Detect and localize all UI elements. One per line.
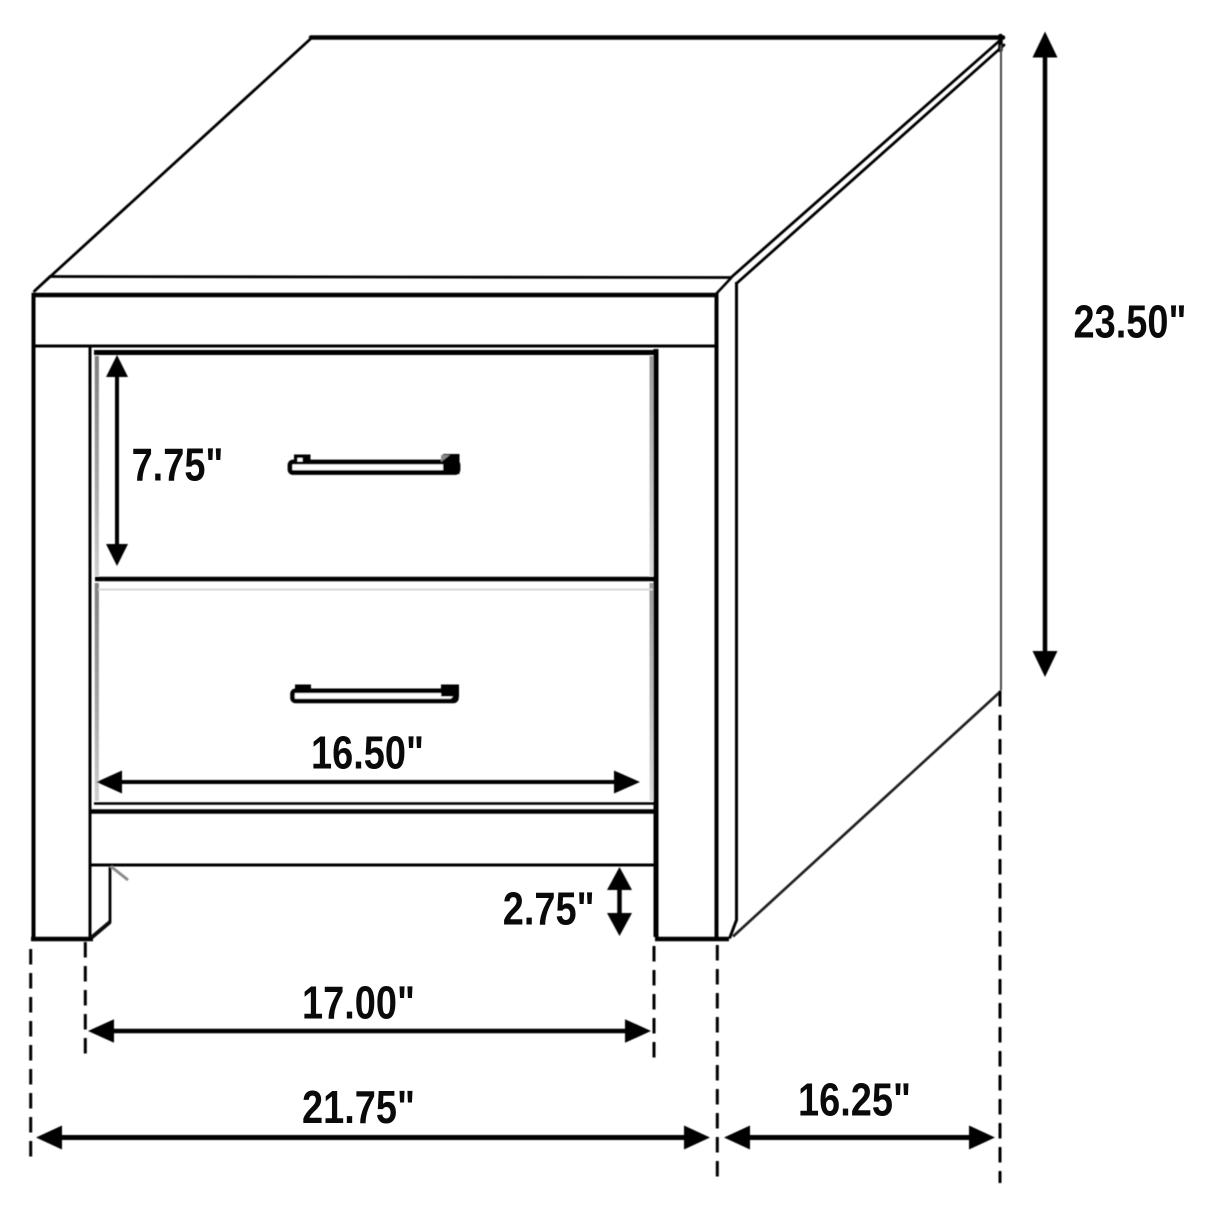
svg-text:21.75": 21.75" <box>302 1082 415 1133</box>
svg-text:7.75": 7.75" <box>132 439 224 490</box>
svg-text:16.50": 16.50" <box>311 727 424 778</box>
svg-text:2.75": 2.75" <box>503 883 595 934</box>
svg-text:16.25": 16.25" <box>798 1074 911 1125</box>
svg-text:17.00": 17.00" <box>302 977 415 1028</box>
svg-text:23.50": 23.50" <box>1074 296 1187 347</box>
